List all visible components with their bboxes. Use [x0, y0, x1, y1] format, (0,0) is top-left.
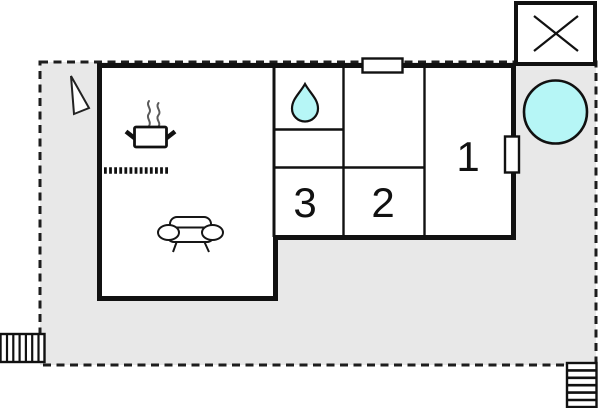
room-3-label: 3	[293, 179, 316, 226]
floor-plan-svg: 1 2 3	[0, 0, 600, 408]
stairs-left-icon	[1, 334, 45, 362]
hot-tub-icon	[524, 81, 587, 144]
door-marker	[505, 137, 519, 173]
cooking-pot-icon	[126, 127, 175, 147]
window-marker	[363, 59, 403, 73]
floor-plan: 1 2 3	[0, 0, 600, 408]
room-1-label: 1	[456, 133, 479, 180]
room-2-label: 2	[371, 179, 394, 226]
x-marked-structure-icon	[516, 3, 595, 64]
stairs-right-icon	[567, 363, 597, 407]
